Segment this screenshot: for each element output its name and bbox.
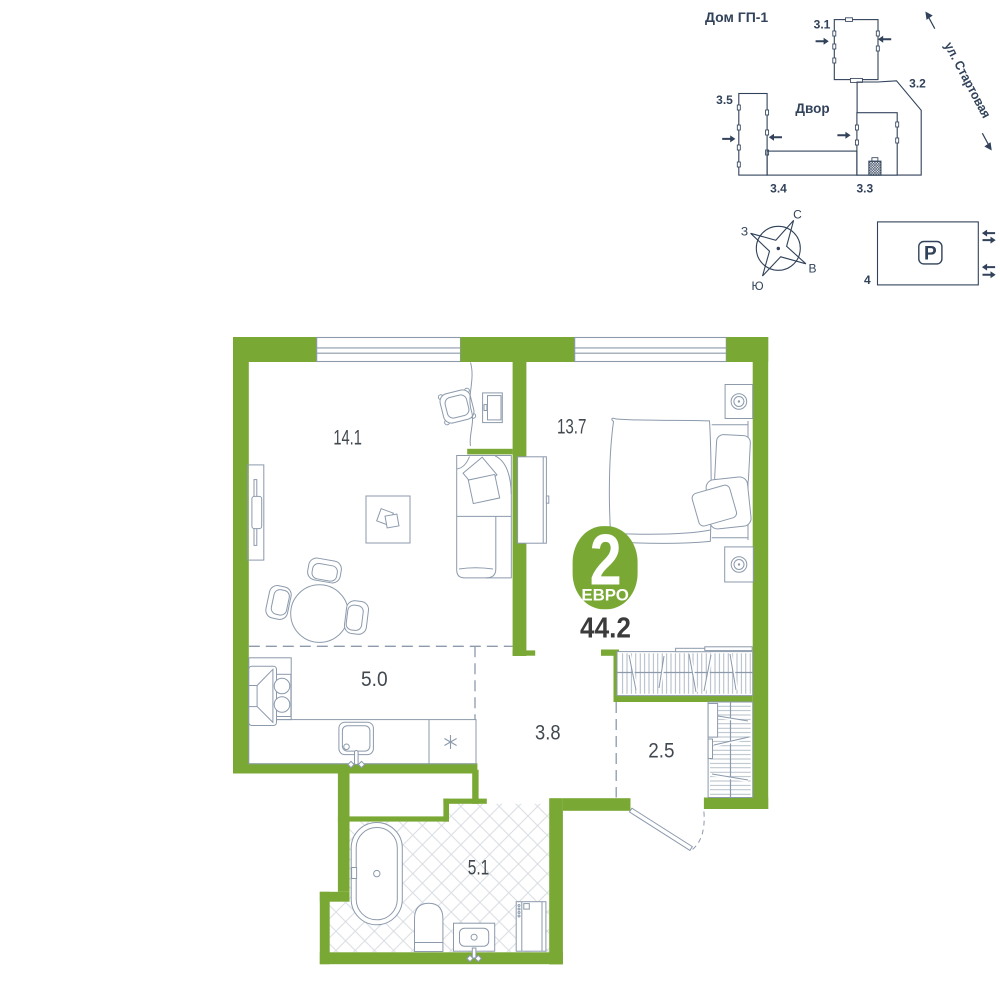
svg-text:5.1: 5.1 bbox=[468, 857, 490, 880]
svg-text:Дом ГП-1: Дом ГП-1 bbox=[705, 9, 768, 25]
svg-text:3.4: 3.4 bbox=[770, 182, 787, 196]
svg-text:3.8: 3.8 bbox=[535, 722, 561, 745]
svg-text:44.2: 44.2 bbox=[580, 613, 631, 645]
svg-text:4: 4 bbox=[864, 273, 871, 287]
svg-text:З: З bbox=[741, 225, 748, 239]
svg-text:ул. Стартовая: ул. Стартовая bbox=[941, 39, 994, 120]
svg-text:2.5: 2.5 bbox=[648, 740, 674, 763]
svg-text:3.5: 3.5 bbox=[716, 93, 733, 107]
svg-text:3.2: 3.2 bbox=[909, 77, 926, 91]
svg-text:P: P bbox=[924, 244, 937, 265]
svg-text:ЕВРО: ЕВРО bbox=[581, 586, 629, 605]
svg-text:В: В bbox=[808, 262, 816, 276]
svg-text:Двор: Двор bbox=[795, 101, 829, 116]
svg-text:С: С bbox=[793, 208, 802, 222]
svg-text:3.1: 3.1 bbox=[814, 18, 831, 32]
svg-text:3.3: 3.3 bbox=[856, 182, 873, 196]
svg-text:5.0: 5.0 bbox=[361, 668, 388, 691]
svg-text:Ю: Ю bbox=[751, 279, 763, 293]
svg-text:14.1: 14.1 bbox=[333, 427, 362, 450]
svg-text:13.7: 13.7 bbox=[557, 416, 587, 439]
